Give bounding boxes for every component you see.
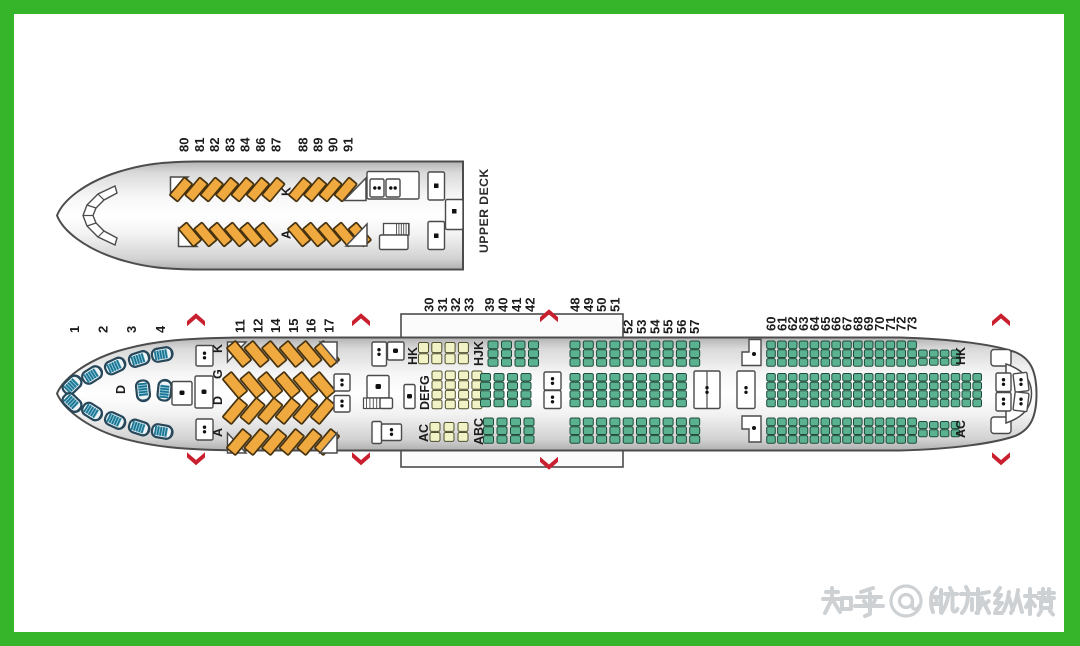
svg-text:K: K — [211, 344, 225, 353]
svg-text:33: 33 — [461, 298, 476, 312]
svg-text:12: 12 — [250, 319, 265, 333]
svg-text:91: 91 — [341, 138, 356, 152]
svg-text:88: 88 — [296, 138, 311, 152]
svg-text:51: 51 — [607, 298, 622, 312]
svg-text:1: 1 — [67, 326, 82, 333]
svg-text:89: 89 — [311, 138, 326, 152]
svg-text:57: 57 — [687, 320, 702, 334]
svg-text:11: 11 — [233, 319, 248, 333]
svg-text:A: A — [211, 428, 225, 437]
svg-text:2: 2 — [96, 326, 111, 333]
svg-text:HK: HK — [406, 347, 420, 365]
svg-text:14: 14 — [268, 318, 283, 333]
svg-text:D: D — [211, 396, 225, 405]
svg-text:4: 4 — [153, 325, 168, 333]
svg-text:17: 17 — [322, 319, 337, 333]
svg-text:87: 87 — [268, 138, 283, 152]
svg-text:AC: AC — [954, 420, 968, 438]
svg-text:3: 3 — [124, 326, 139, 333]
svg-text:16: 16 — [304, 319, 319, 333]
svg-text:73: 73 — [905, 317, 920, 331]
svg-text:AC: AC — [417, 424, 431, 442]
svg-text:81: 81 — [192, 138, 207, 152]
svg-text:82: 82 — [207, 138, 222, 152]
svg-text:86: 86 — [253, 138, 268, 152]
svg-text:HJK: HJK — [472, 341, 486, 366]
svg-text:DEFG: DEFG — [418, 375, 432, 410]
svg-text:80: 80 — [177, 138, 192, 152]
svg-text:84: 84 — [238, 137, 253, 152]
svg-text:G: G — [211, 369, 225, 379]
svg-text:UPPER DECK: UPPER DECK — [477, 168, 491, 253]
svg-text:D: D — [114, 385, 128, 394]
svg-text:HK: HK — [954, 347, 968, 365]
svg-text:42: 42 — [523, 298, 538, 312]
svg-text:83: 83 — [222, 138, 237, 152]
svg-text:90: 90 — [326, 138, 341, 152]
svg-text:15: 15 — [286, 319, 301, 333]
